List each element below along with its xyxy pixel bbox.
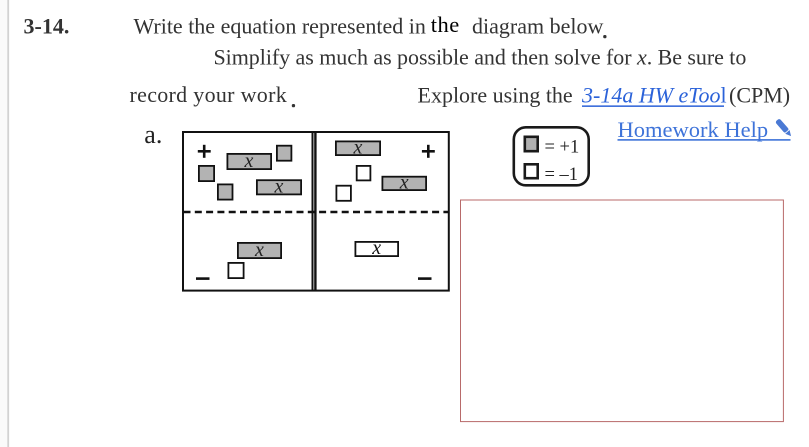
svg-text:x: x: [353, 137, 363, 159]
svg-text:Homework Help: Homework Help: [618, 117, 769, 142]
svg-text:= +1: = +1: [545, 137, 580, 157]
svg-text:Explore using the: Explore using the: [418, 83, 573, 108]
svg-text:3-14.: 3-14.: [24, 13, 70, 38]
svg-text:x: x: [254, 239, 264, 261]
svg-text:a.: a.: [144, 120, 162, 149]
svg-text:x: x: [371, 237, 381, 259]
svg-text:= –1: = –1: [545, 165, 579, 185]
svg-text:(CPM): (CPM): [729, 83, 790, 108]
svg-text:the: the: [431, 12, 460, 37]
svg-text:3-14a HW eTool: 3-14a HW eTool: [581, 83, 727, 108]
svg-text:diagram below: diagram below: [472, 13, 603, 38]
svg-text:Simplify as much as possible a: Simplify as much as possible and then so…: [214, 45, 747, 70]
svg-text:record your work: record your work: [130, 82, 288, 107]
svg-text:Write the equation represented: Write the equation represented in: [134, 13, 426, 38]
svg-text:x: x: [244, 150, 254, 172]
svg-text:x: x: [274, 175, 284, 197]
svg-text:x: x: [399, 172, 409, 194]
